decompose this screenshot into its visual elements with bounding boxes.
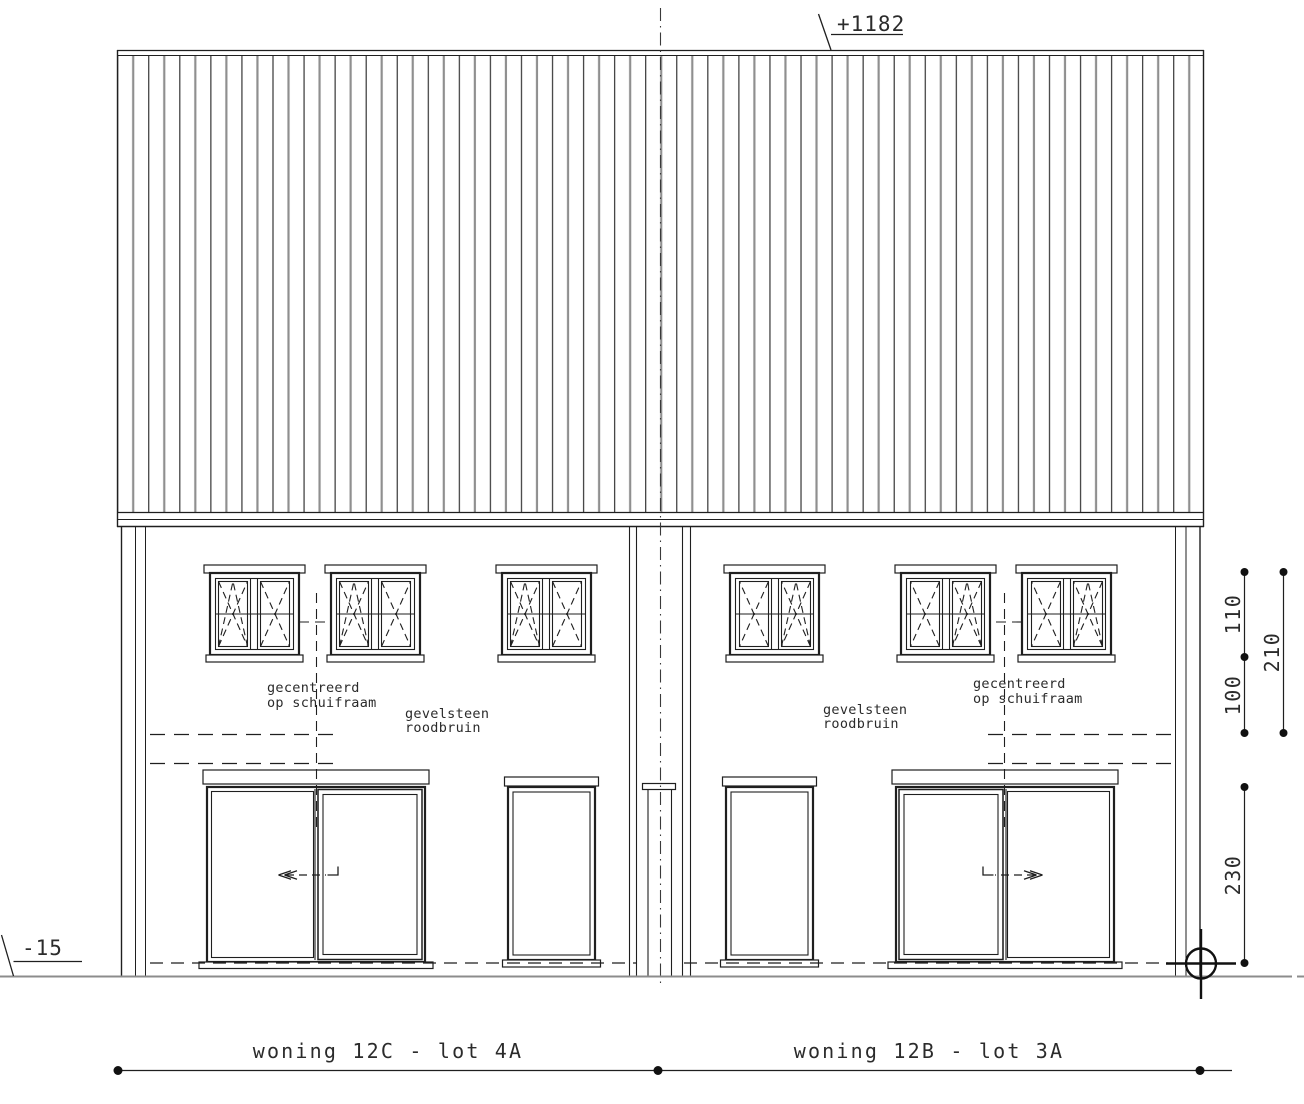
right-centered-note-line1: gecentreerd	[973, 676, 1066, 692]
facade-elevation-svg: 110 100 210 230 woning 12C - lot 4A woni…	[0, 0, 1304, 1104]
dimension-110: 110	[1221, 594, 1245, 635]
downpipe-collar	[643, 784, 676, 790]
left-material-note-line2: roodbruin	[405, 720, 481, 736]
upper-window-3	[496, 565, 597, 662]
house-right	[721, 565, 1172, 969]
left-centered-note-line2: op schuifraam	[267, 695, 377, 711]
sliding-door	[199, 770, 433, 969]
ground-level-label: -15	[22, 936, 63, 960]
peak-level-label: +1182	[837, 12, 905, 36]
dimension-210: 210	[1260, 632, 1284, 673]
dimension-dots	[1241, 568, 1288, 967]
right-material-note-line2: roodbruin	[823, 716, 899, 732]
upper-window-1	[204, 565, 305, 662]
lot-label-right: woning 12B - lot 3A	[794, 1039, 1065, 1063]
side-window	[503, 777, 601, 967]
house-left	[150, 565, 601, 969]
upper-window-2	[325, 565, 426, 662]
lot-label-left: woning 12C - lot 4A	[253, 1039, 524, 1063]
masonry-course-lines	[150, 735, 333, 764]
notes: gecentreerd op schuifraam gecentreerd op…	[267, 676, 1083, 736]
level-annotation-bottom: -15	[2, 935, 83, 976]
right-wall	[1176, 526, 1201, 976]
bottom-dimension-line: woning 12C - lot 4A woning 12B - lot 3A	[114, 1039, 1233, 1075]
rain-downpipe	[643, 784, 676, 977]
elevation-drawing: 110 100 210 230 woning 12C - lot 4A woni…	[0, 0, 1304, 1104]
level-annotation-top: +1182	[819, 12, 906, 50]
dimension-230: 230	[1221, 855, 1245, 896]
dimension-group-right: 110 100 210 230	[1221, 568, 1288, 967]
dimension-100: 100	[1221, 675, 1245, 716]
left-centered-note-line1: gecentreerd	[267, 680, 360, 696]
right-centered-note-line2: op schuifraam	[973, 691, 1083, 707]
left-wall	[122, 526, 146, 976]
survey-marker	[1166, 929, 1236, 999]
